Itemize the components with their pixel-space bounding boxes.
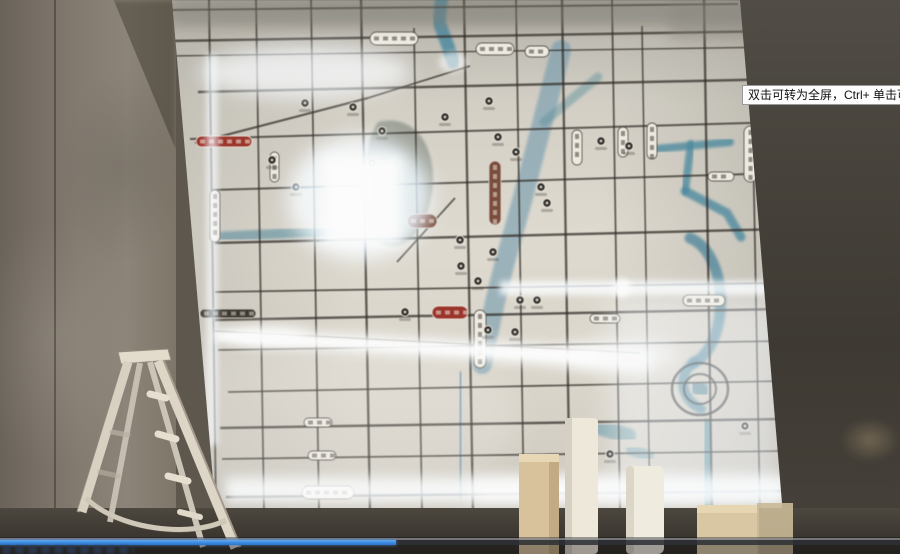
packing-boxes	[519, 418, 793, 554]
ladder-step	[112, 432, 128, 435]
step-ladder	[78, 349, 240, 548]
ladder-step	[158, 434, 176, 439]
fullscreen-tooltip: 双击可转为全屏，Ctrl+ 单击可转为	[742, 85, 900, 105]
video-progress-bar[interactable]	[0, 540, 900, 545]
ladder-front-left-leg	[82, 362, 128, 512]
ladder-step	[100, 472, 118, 476]
foreground-objects	[0, 0, 900, 554]
box-tan-low-top	[697, 505, 759, 513]
video-progress-fill	[0, 540, 396, 545]
ladder-step	[168, 476, 188, 481]
ladder-step	[150, 394, 166, 398]
ladder-step	[180, 512, 200, 517]
ladder-spreader-brace	[86, 498, 226, 529]
box-white-shade	[565, 418, 572, 554]
watermark-text	[2, 546, 134, 554]
box-tan-top	[519, 454, 559, 462]
